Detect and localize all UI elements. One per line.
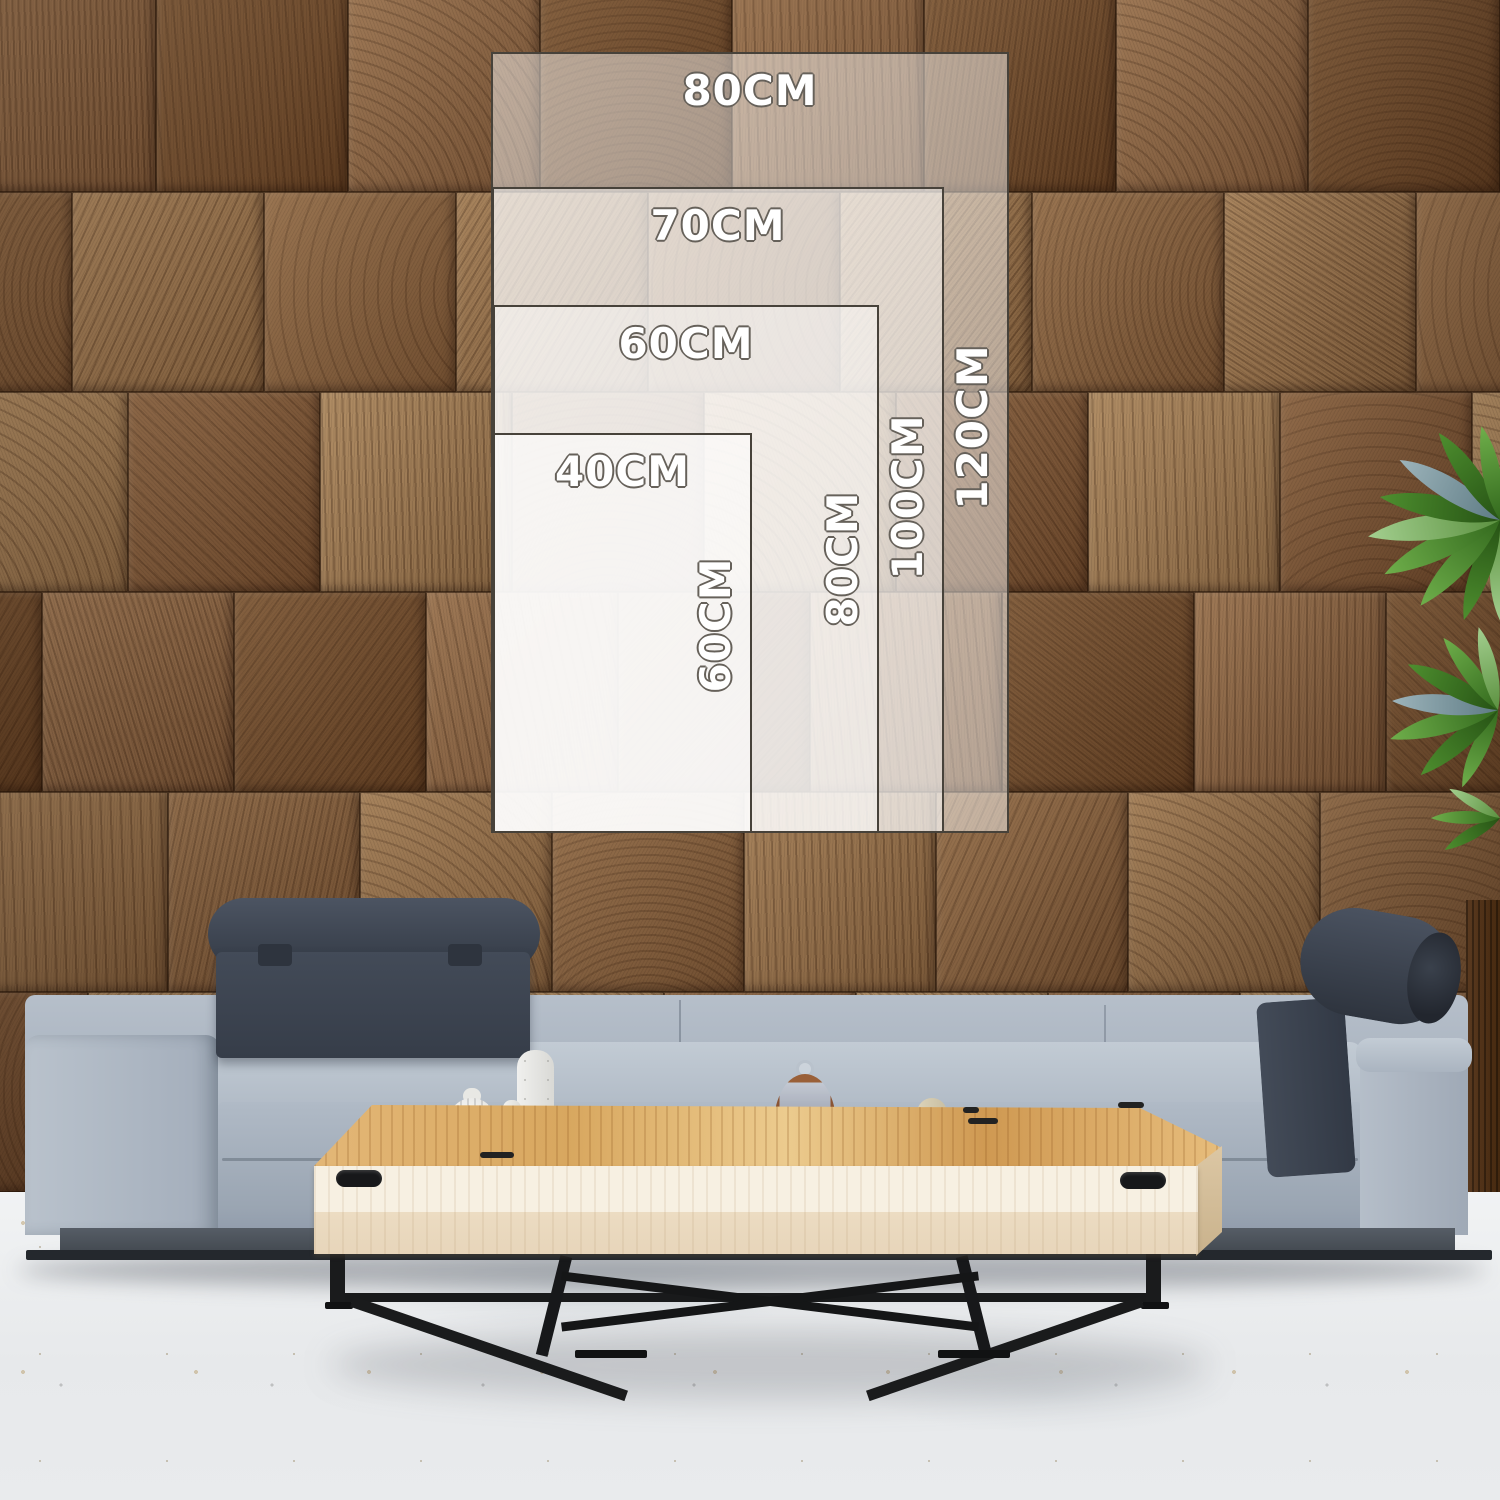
table-leg-left-foot — [325, 1302, 353, 1309]
left-headrest-strap-1 — [258, 944, 292, 966]
table-hinge-3 — [968, 1118, 998, 1124]
table-hinge-1 — [480, 1152, 514, 1158]
table-handle-left — [336, 1170, 382, 1187]
table-hinge-4 — [1118, 1102, 1144, 1108]
table-leg-right-post — [1146, 1254, 1161, 1306]
left-headrest-strap-2 — [448, 944, 482, 966]
table-leg-left-diag-1 — [350, 1296, 628, 1401]
table-leg-left-foot-2 — [575, 1350, 647, 1358]
table-leg-right-diag-2 — [956, 1255, 992, 1357]
table-leg-right-diag-1 — [866, 1296, 1144, 1401]
table-leg-right-foot — [1141, 1302, 1169, 1309]
coffee-table — [0, 1000, 1500, 1420]
size-guide-mockup-scene: 80CM 120CM 70CM 100CM 60CM 80CM 40CM 60C… — [0, 0, 1500, 1500]
plant-leaves — [1392, 420, 1500, 840]
table-hinge-2 — [963, 1107, 979, 1113]
table-leg-left-diag-2 — [536, 1255, 572, 1357]
table-leg-right-foot-2 — [938, 1350, 1010, 1358]
table-front-face — [314, 1166, 1198, 1254]
table-top-face — [314, 1105, 1222, 1168]
table-handle-right — [1120, 1172, 1166, 1189]
table-leg-left-post — [330, 1254, 345, 1306]
